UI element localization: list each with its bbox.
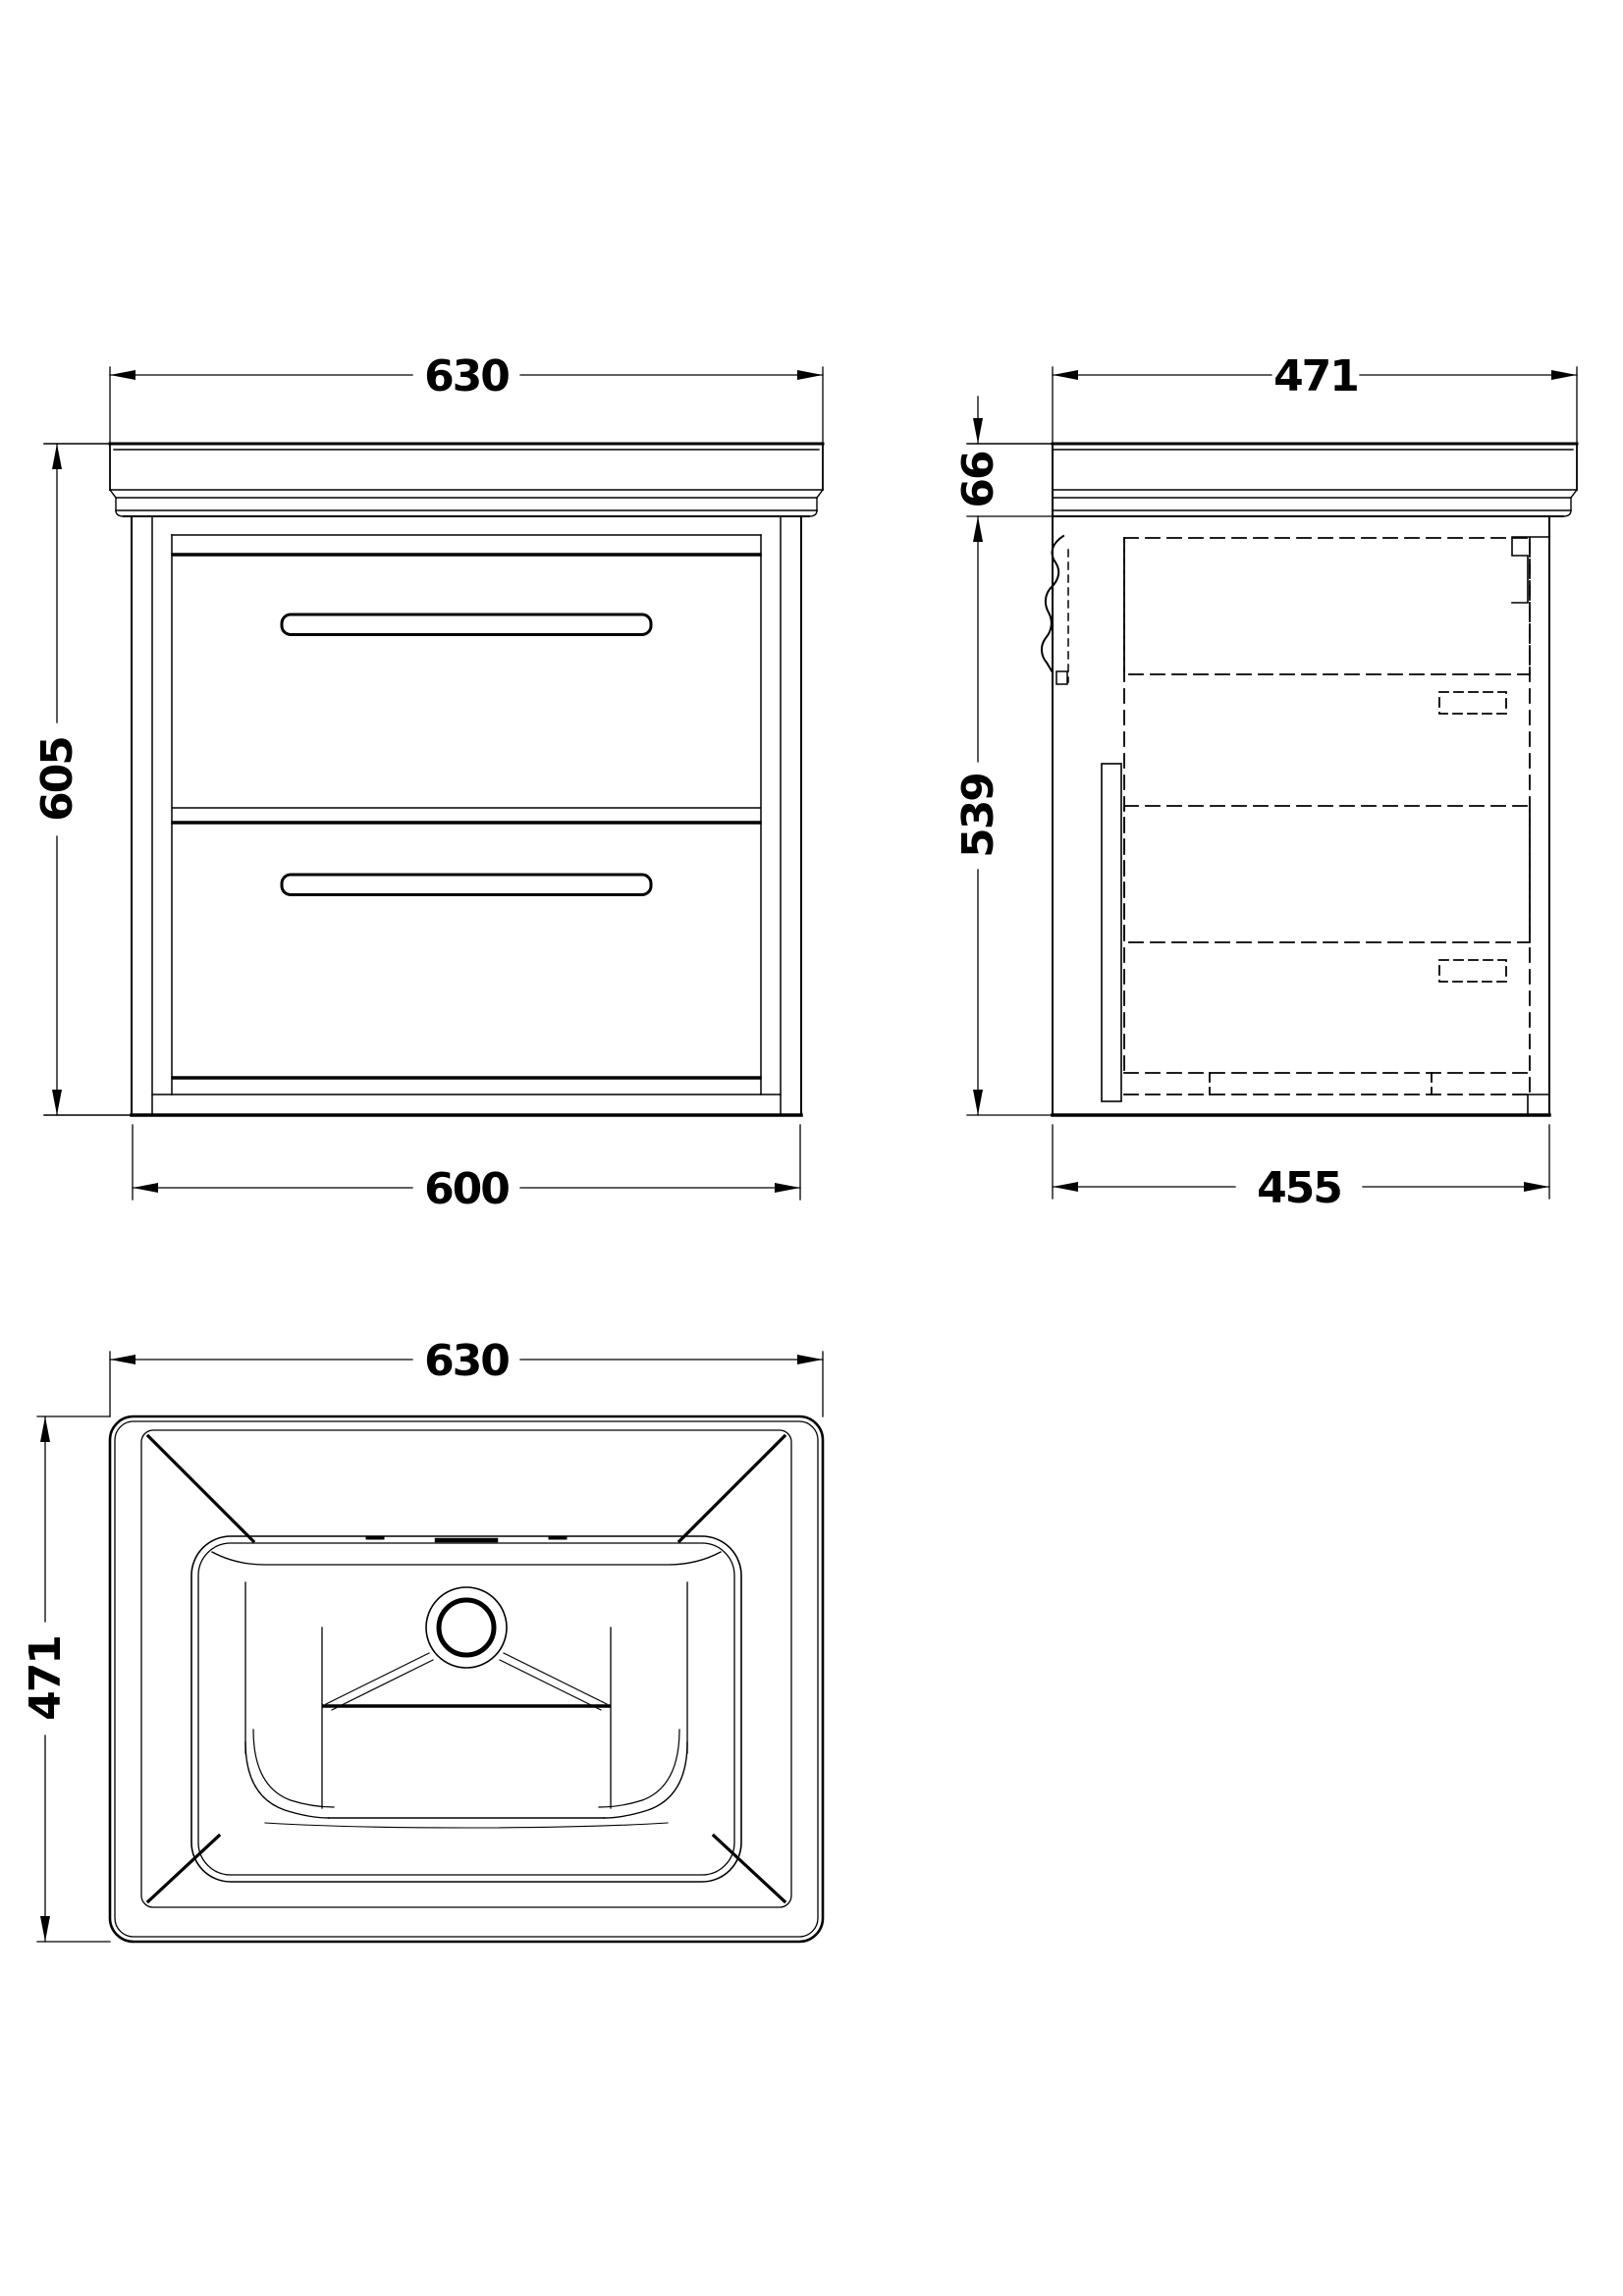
- front-dim-top-width-label: 630: [424, 351, 509, 401]
- drawing-sheet: 630 605 600: [0, 0, 1623, 2296]
- side-dim-top-depth-label: 471: [1273, 351, 1358, 401]
- plan-dim-depth-label: 471: [21, 1636, 71, 1721]
- side-dim-bottom-depth-label: 455: [1257, 1163, 1341, 1213]
- technical-drawing: 630 605 600: [0, 0, 1623, 2296]
- side-dim-cabinet-height-label: 539: [953, 774, 1003, 858]
- sheet-background: [0, 0, 1623, 2296]
- side-dim-counter-height-label: 66: [953, 452, 1003, 508]
- front-dim-left-height-label: 605: [32, 737, 82, 822]
- plan-dim-width-label: 630: [424, 1336, 509, 1386]
- front-dim-bottom-width-label: 600: [424, 1164, 509, 1214]
